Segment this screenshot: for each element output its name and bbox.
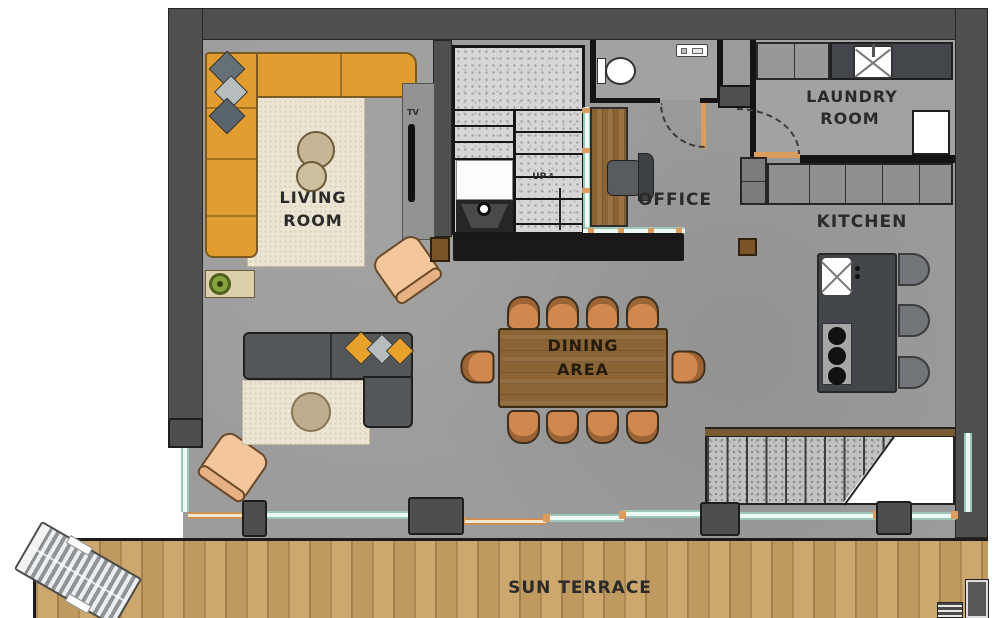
wood-post: [738, 238, 757, 256]
wall-top: [168, 8, 988, 40]
window-left-corner: [181, 448, 189, 512]
stair-white-landing: [456, 160, 513, 200]
dining-chair: [626, 296, 659, 330]
island-sink-icon: [820, 256, 853, 297]
window-post: [242, 500, 267, 537]
stairs-up-text: UP: [532, 172, 546, 182]
stair-step: [455, 125, 513, 127]
window-segment: [464, 518, 546, 525]
dining-label-1: DINING: [547, 336, 618, 355]
burner-icon: [828, 347, 846, 365]
stair-up-arrow-line: [559, 188, 561, 230]
up-arrow-icon: ↗: [546, 172, 554, 182]
dining-label-2: AREA: [557, 360, 609, 379]
plant-center: [217, 281, 223, 287]
window-frame-tick: [951, 511, 958, 519]
terrace-steps: [937, 602, 963, 618]
laundry-cabinets: [756, 42, 830, 80]
cabinet-divider: [794, 44, 795, 78]
laundry-sink-icon: [853, 45, 893, 79]
tv-screen: [408, 124, 415, 202]
window-right-wall: [964, 433, 972, 512]
window-segment: [188, 512, 245, 519]
dining-chair: [586, 410, 619, 444]
dining-chair: [507, 296, 540, 330]
washing-machine-icon: [912, 110, 950, 155]
burner-icon: [828, 367, 846, 385]
dining-chair: [507, 410, 540, 444]
stair-step: [455, 141, 513, 143]
terrace-side-strip: [966, 580, 988, 618]
sofa-seam: [207, 215, 256, 217]
island-faucet-dot: [855, 274, 860, 279]
stair-landing-edge: [455, 109, 582, 111]
plant: [209, 273, 231, 295]
kitchen-cabinet-left: [740, 157, 767, 205]
kitchen-label: KITCHEN: [817, 212, 908, 232]
cabinet-divider: [742, 181, 765, 182]
laundry-wall-bottom: [800, 155, 955, 163]
tv-label: TV: [407, 108, 419, 117]
staircase-up: [452, 45, 585, 235]
burner-icon: [828, 327, 846, 345]
floor-plan: SUN TERRACE LIVING ROOM TV: [0, 0, 1000, 618]
living-room-label-2: ROOM: [283, 211, 342, 230]
dining-chair: [586, 296, 619, 330]
bathroom-wall-left: [590, 40, 596, 103]
staircase-down: [705, 437, 955, 505]
stair-step: [516, 198, 582, 200]
stair-break-white: [843, 437, 953, 503]
cabinet-divider: [882, 165, 883, 203]
bench: [453, 233, 684, 261]
sofa-orange-top: [256, 52, 417, 98]
window-post: [876, 501, 912, 535]
dining-chair: [626, 410, 659, 444]
sofa-seam-dark: [330, 334, 332, 378]
kitchen-counter: [767, 163, 953, 205]
faucet: [681, 48, 687, 54]
office-label: OFFICE: [638, 190, 712, 210]
faucet: [872, 44, 875, 57]
soap-tray: [692, 48, 703, 54]
cabinet-divider: [809, 165, 810, 203]
stairs-down-edge: [705, 427, 955, 437]
sofa-seam: [340, 54, 342, 96]
window-post: [408, 497, 464, 535]
toilet-bowl-icon: [605, 57, 636, 85]
pouf: [291, 392, 331, 432]
stairs-up-label: UP↗: [532, 172, 553, 182]
laundry-label-1: LAUNDRY: [806, 87, 898, 106]
island-faucet-dot: [855, 266, 860, 271]
window-post: [700, 502, 740, 536]
wall-left: [168, 8, 203, 448]
window-segment: [266, 511, 409, 519]
sofa-seam: [207, 158, 256, 160]
window-frame-tick: [543, 514, 550, 522]
wood-post: [430, 237, 450, 262]
stair-step: [516, 153, 582, 155]
tv-panel: [402, 83, 435, 240]
fireplace: [456, 200, 513, 232]
cabinet-divider: [919, 165, 920, 203]
window-segment: [622, 510, 701, 518]
bathroom-sink: [676, 44, 708, 57]
window-segment: [911, 512, 956, 520]
fireplace-emblem-icon: [477, 202, 491, 216]
sofa-charcoal-chaise: [363, 376, 413, 428]
window-segment: [739, 512, 878, 520]
office-chair: [607, 160, 641, 196]
balustrade-vertical: [583, 107, 590, 235]
cabinet-divider: [845, 165, 846, 203]
stair-step: [516, 131, 582, 133]
cooktop: [822, 323, 852, 385]
stair-step: [516, 223, 582, 225]
dining-chair: [546, 296, 579, 330]
dining-chair: [546, 410, 579, 444]
bathroom-wall-bottom-left: [590, 98, 660, 103]
stair-divider: [513, 109, 516, 235]
dining-chair: [461, 351, 495, 384]
sun-terrace-label: SUN TERRACE: [508, 578, 652, 598]
wall-stairs-left: [433, 40, 452, 237]
dining-chair: [672, 351, 706, 384]
laundry-label-2: ROOM: [820, 109, 879, 128]
window-frame-tick: [619, 511, 626, 519]
window-segment: [545, 514, 624, 522]
wall-corridor-block: [718, 85, 752, 108]
window-post: [168, 418, 203, 448]
living-room-label-1: LIVING: [279, 188, 346, 207]
